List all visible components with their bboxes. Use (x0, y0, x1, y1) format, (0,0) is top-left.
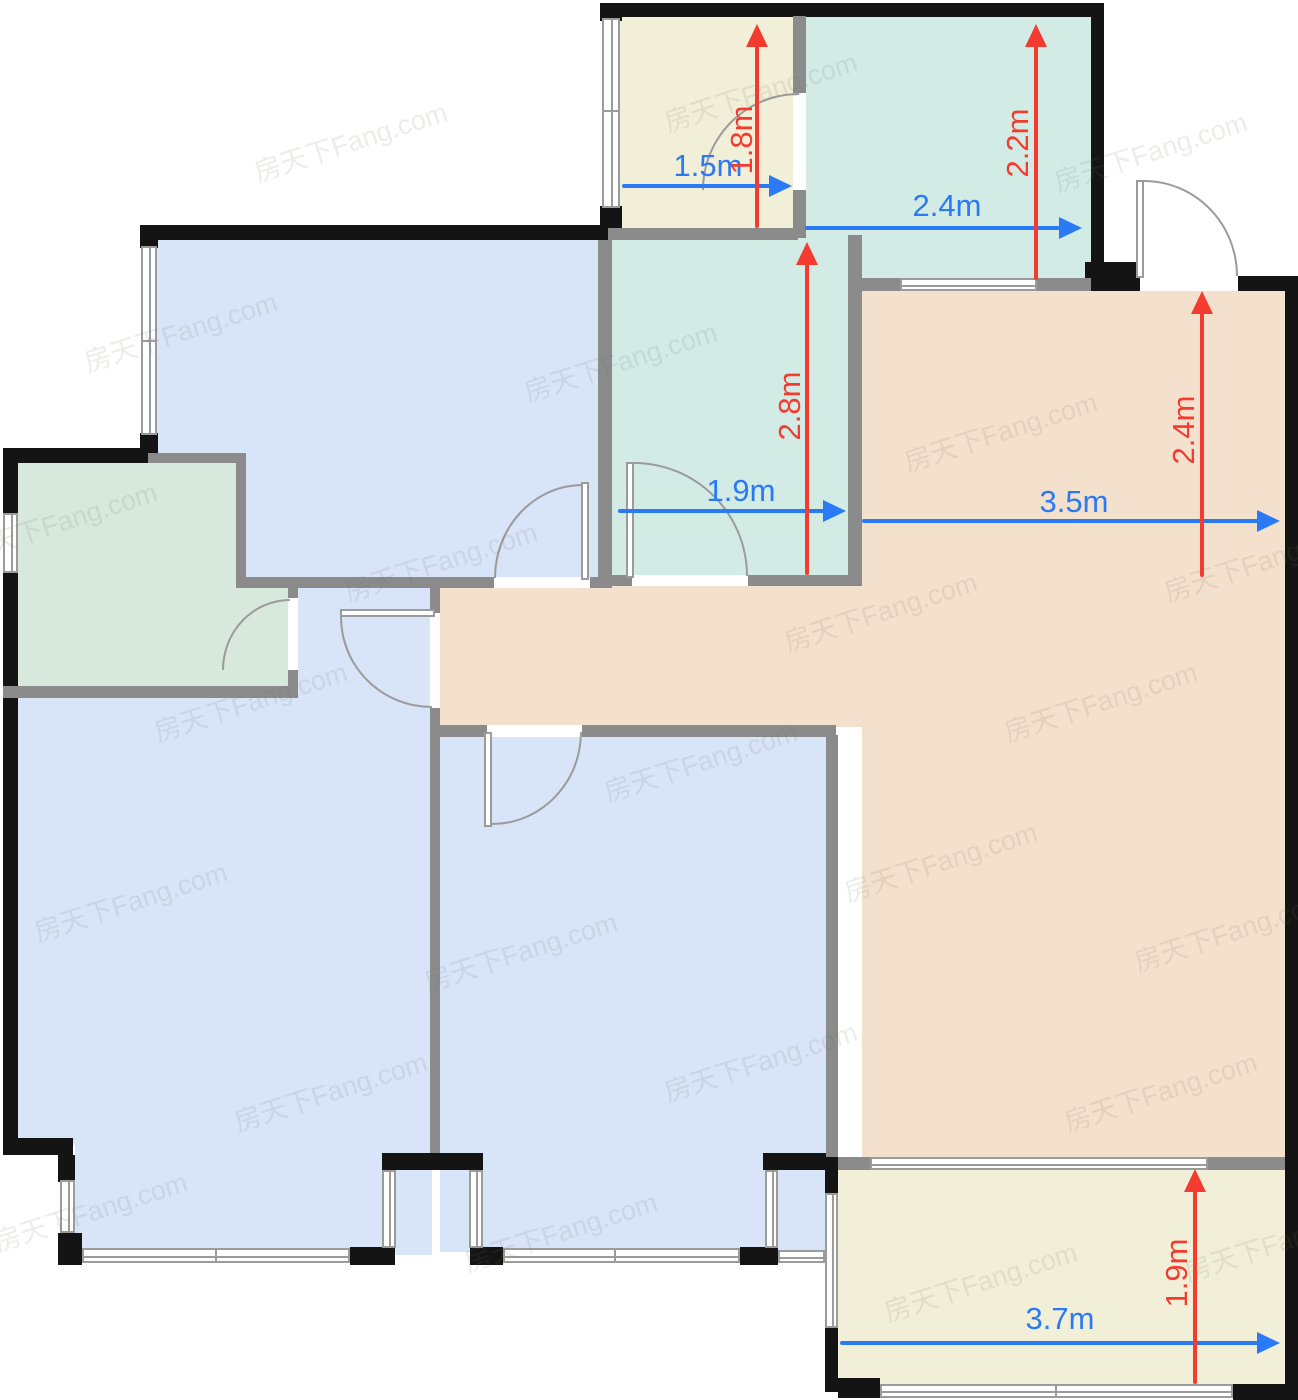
door-leaf (484, 732, 492, 827)
door-leaf (340, 609, 435, 617)
dim-label-bath-top-width: 2.4m (913, 188, 982, 224)
wall-segment (793, 16, 806, 93)
dim-arrowhead-closet-height (746, 24, 768, 47)
wall-segment (58, 1233, 82, 1265)
dim-label-balcony-height: 1.9m (1159, 1239, 1195, 1308)
wall-segment (838, 1378, 880, 1398)
window-divider (141, 340, 157, 342)
wall-segment (582, 725, 836, 737)
window (469, 1170, 483, 1248)
dim-label-closet-height: 1.8m (724, 106, 760, 175)
window (60, 1180, 75, 1233)
dim-arrowhead-living-width (1257, 510, 1280, 532)
window (825, 1193, 838, 1328)
dim-label-living-height: 2.4m (1166, 396, 1202, 465)
dim-arrowhead-living-height (1191, 291, 1213, 314)
dim-arrow-bath-top-width (805, 226, 1061, 230)
dim-arrowhead-closet-width (769, 175, 792, 197)
wall-segment (350, 1247, 395, 1265)
wall-segment (470, 1247, 503, 1265)
wall-segment (3, 463, 18, 513)
window-divider (614, 1248, 616, 1263)
dim-arrowhead-balcony-height (1184, 1169, 1206, 1192)
wall-segment (608, 228, 798, 240)
door-leaf (626, 462, 634, 578)
dim-arrowhead-balcony-width (1257, 1332, 1280, 1354)
wall-segment (1208, 1157, 1285, 1170)
wall-segment (793, 190, 806, 238)
dim-arrowhead-bath-top-width (1059, 217, 1082, 239)
wall-segment (826, 735, 838, 1157)
wall-segment (748, 575, 862, 586)
wall-segment (1238, 276, 1285, 291)
watermark-text: 房天下Fang.com (248, 90, 451, 189)
dim-label-living-width: 3.5m (1040, 484, 1109, 520)
window (870, 1157, 1208, 1170)
dim-label-bath-top-height: 2.2m (1000, 109, 1036, 178)
wall-segment (3, 686, 298, 698)
room-living-main (862, 288, 1285, 1160)
wall-segment (430, 708, 440, 1153)
wall-segment (140, 225, 158, 248)
room-bedroom-bottom-left (18, 690, 432, 1145)
window (765, 1170, 778, 1248)
wall-segment (288, 583, 298, 598)
wall-segment (825, 1328, 838, 1392)
wall-segment (590, 577, 612, 588)
dim-arrow-closet-width (622, 184, 772, 188)
wall-segment (1285, 276, 1298, 1400)
dim-arrow-bath-mid-width (618, 509, 825, 513)
wall-segment (608, 3, 1104, 17)
wall-segment (1233, 1384, 1285, 1400)
door-arc (1144, 180, 1238, 276)
wall-segment (236, 453, 246, 583)
wall-segment (3, 1138, 73, 1155)
dim-arrowhead-bath-top-height (1025, 24, 1047, 47)
dim-arrowhead-bath-mid-height (796, 242, 818, 265)
window-divider (215, 1248, 217, 1263)
window (503, 1248, 740, 1263)
wall-segment (848, 235, 862, 586)
wall-segment (1085, 262, 1140, 291)
dim-label-bath-mid-width: 1.9m (707, 473, 776, 509)
wall-segment (440, 725, 487, 737)
wall-segment (862, 278, 900, 291)
wall-segment (382, 1153, 483, 1170)
wall-segment (3, 448, 148, 463)
wall-segment (140, 225, 608, 240)
wall-segment (838, 1157, 870, 1170)
room-bedroom-bottom-left-2 (75, 1145, 432, 1255)
room-hall-band (432, 586, 870, 727)
door-leaf (1136, 180, 1144, 278)
window (602, 18, 620, 208)
floor-plan: 房天下Fang.com房天下Fang.com房天下Fang.com房天下Fang… (0, 0, 1298, 1400)
dim-arrowhead-bath-mid-width (823, 500, 846, 522)
window (3, 513, 18, 573)
dim-label-balcony-width: 3.7m (1026, 1301, 1095, 1337)
wall-segment (1091, 3, 1104, 291)
room-balcony (838, 1163, 1285, 1388)
wall-segment (236, 577, 494, 588)
door-opening (494, 577, 590, 588)
window (382, 1170, 396, 1248)
window (900, 278, 1037, 291)
wall-segment (598, 240, 612, 578)
wall-segment (740, 1247, 778, 1265)
wall-segment (58, 1155, 75, 1182)
window-divider (1055, 1384, 1057, 1398)
window-divider (602, 110, 620, 112)
room-bath-left (18, 462, 240, 692)
dim-label-bath-mid-height: 2.8m (772, 372, 808, 441)
door-opening (632, 575, 748, 586)
door-opening (1140, 276, 1238, 291)
wall-segment (3, 573, 18, 1140)
wall-segment (825, 1155, 838, 1193)
wall-segment (1037, 278, 1091, 291)
window (778, 1250, 825, 1263)
wall-segment (148, 453, 246, 463)
